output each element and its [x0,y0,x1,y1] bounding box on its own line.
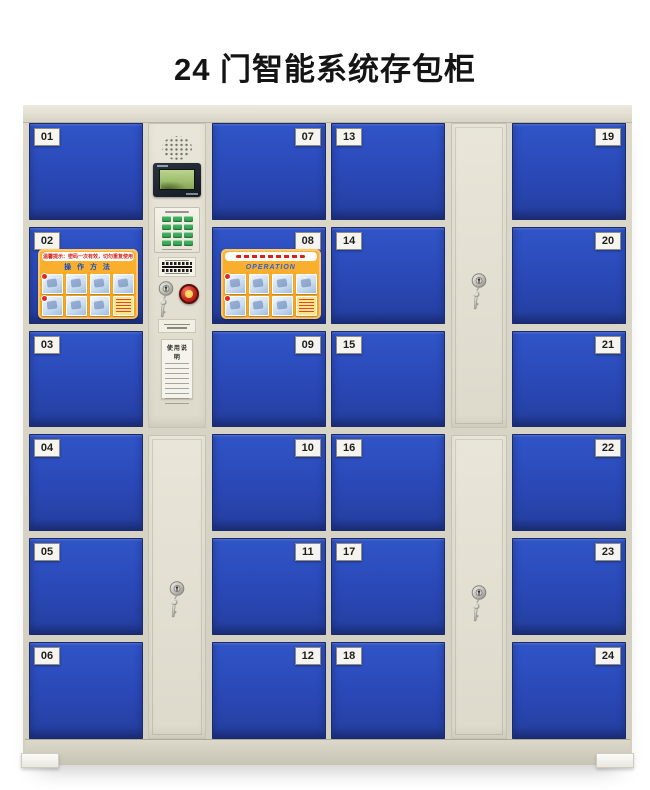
step-image [90,274,111,294]
operation-sticker-cn: 温馨提示：密码一次有效，切勿重复使用操 作 方 法 [38,249,138,319]
locker-door-20: 20 [512,227,626,324]
locker-number-tag: 13 [336,128,362,146]
locker-number-tag: 24 [595,647,621,665]
keypad-caption [162,249,192,251]
usage-instructions-sticker: 使用说明 [161,339,193,399]
control-lower-door [148,435,206,740]
barcode-bars [162,262,192,264]
control-lower-lock [166,581,188,621]
locker-door-07: 07 [212,123,326,220]
cabinet-foot-right [596,753,634,768]
barcode-solid-bar [162,266,192,269]
step-image [113,274,134,294]
keypad-key [184,232,193,238]
emergency-button [179,284,199,304]
keypad-key [173,224,182,230]
product-photo-page: 24 门智能系统存包柜 0102温馨提示：密码一次有效，切勿重复使用操 作 方 … [0,0,650,790]
locker-number-tag: 11 [295,543,321,561]
usage-instructions-title: 使用说明 [165,343,189,361]
locker-door-22: 22 [512,434,626,531]
locker-number-tag: 09 [295,336,321,354]
locker-door-12: 12 [212,642,326,739]
barcode-text-line [165,260,189,261]
locker-number-tag: 20 [595,232,621,250]
sticker-header: 温馨提示：密码一次有效，切勿重复使用 [42,252,134,261]
service-label-line [167,327,187,329]
master-key-lock [155,281,177,321]
locker-door-06: 06 [29,642,143,739]
lcd-display [159,169,195,190]
sticker-header-text [236,255,305,258]
locker-door-21: 21 [512,331,626,428]
service-lower-lock [468,585,490,625]
sticker-step-row [225,296,317,316]
locker-door-02: 02温馨提示：密码一次有效，切勿重复使用操 作 方 法 [29,227,143,324]
step-image [90,296,111,316]
locker-door-04: 04 [29,434,143,531]
cabinet-top-bar [23,105,632,123]
keypad-label [165,211,189,213]
door-column-2: 0708OPERATION09101112 [212,123,326,739]
cabinet-columns: 0102温馨提示：密码一次有效，切勿重复使用操 作 方 法03040506 [29,123,626,739]
keypad-key [162,224,171,230]
step-image [272,296,293,316]
step-image [225,296,246,316]
service-door-upper [451,123,507,428]
step-image [296,274,317,294]
plinth [25,739,630,765]
control-column: 使用说明 [148,123,206,739]
barcode-text-line [165,273,189,274]
locker-door-03: 03 [29,331,143,428]
step-image [249,274,270,294]
keypad-panel [154,207,200,253]
locker-door-16: 16 [331,434,445,531]
locker-door-15: 15 [331,331,445,428]
door-column-4: 192021222324 [512,123,626,739]
service-column [451,123,507,739]
locker-number-tag: 04 [34,439,60,457]
key-lock-icon [468,585,490,625]
locker-number-tag: 21 [595,336,621,354]
lcd-screen [153,163,201,197]
locker-door-09: 09 [212,331,326,428]
step-image [42,296,63,316]
keypad-key [184,216,193,222]
locker-door-13: 13 [331,123,445,220]
barcode-bars [162,269,192,271]
warning-note [113,296,134,316]
locker-number-tag: 08 [295,232,321,250]
step-image [66,274,87,294]
key-lock-icon [468,273,490,313]
keypad-keys [162,216,193,246]
service-label-line [164,324,190,326]
locker-cabinet: 0102温馨提示：密码一次有效，切勿重复使用操 作 方 法03040506 [23,105,632,765]
locker-number-tag: 23 [595,543,621,561]
locker-number-tag: 01 [34,128,60,146]
locker-door-05: 05 [29,538,143,635]
operation-sticker-en: OPERATION [221,249,321,319]
door-column-1: 0102温馨提示：密码一次有效，切勿重复使用操 作 方 法03040506 [29,123,143,739]
step-image [225,274,246,294]
locker-number-tag: 06 [34,647,60,665]
locker-door-08: 08OPERATION [212,227,326,324]
locker-number-tag: 03 [34,336,60,354]
locker-door-11: 11 [212,538,326,635]
step-image [66,296,87,316]
locker-door-23: 23 [512,538,626,635]
warning-note [296,296,317,316]
service-upper-lock [468,273,490,313]
keypad-key [184,240,193,246]
locker-door-18: 18 [331,642,445,739]
usage-instructions-text [165,363,189,405]
door-column-3: 131415161718 [331,123,445,739]
key-lock-icon [166,581,188,621]
locker-number-tag: 18 [336,647,362,665]
cabinet-foot-left [21,753,59,768]
sticker-step-row [42,296,134,316]
locker-number-tag: 14 [336,232,362,250]
locker-door-17: 17 [331,538,445,635]
locker-door-24: 24 [512,642,626,739]
sticker-title: 操 作 方 法 [42,263,134,272]
sticker-header [225,252,317,261]
keypad-key [184,224,193,230]
locker-number-tag: 05 [34,543,60,561]
sticker-title: OPERATION [225,263,317,272]
locker-door-14: 14 [331,227,445,324]
locker-door-10: 10 [212,434,326,531]
control-panel-door: 使用说明 [148,123,206,428]
locker-number-tag: 12 [295,647,321,665]
locker-door-19: 19 [512,123,626,220]
service-door-lower [451,435,507,740]
keypad-key [173,240,182,246]
keypad-key [162,232,171,238]
locker-number-tag: 02 [34,232,60,250]
key-lock-icon [155,281,177,321]
keypad-key [162,240,171,246]
service-label [158,319,196,333]
keypad-key [173,216,182,222]
keypad-key [162,216,171,222]
barcode-label [158,257,196,277]
step-image [249,296,270,316]
page-title: 24 门智能系统存包柜 [0,44,650,89]
locker-number-tag: 17 [336,543,362,561]
sticker-step-row [42,274,134,294]
locker-number-tag: 10 [295,439,321,457]
control-lock-row [155,281,199,321]
sticker-step-row [225,274,317,294]
speaker-icon [162,136,192,160]
locker-number-tag: 15 [336,336,362,354]
step-image [272,274,293,294]
locker-number-tag: 22 [595,439,621,457]
locker-number-tag: 16 [336,439,362,457]
locker-number-tag: 07 [295,128,321,146]
locker-door-01: 01 [29,123,143,220]
step-image [42,274,63,294]
keypad-key [173,232,182,238]
locker-number-tag: 19 [595,128,621,146]
